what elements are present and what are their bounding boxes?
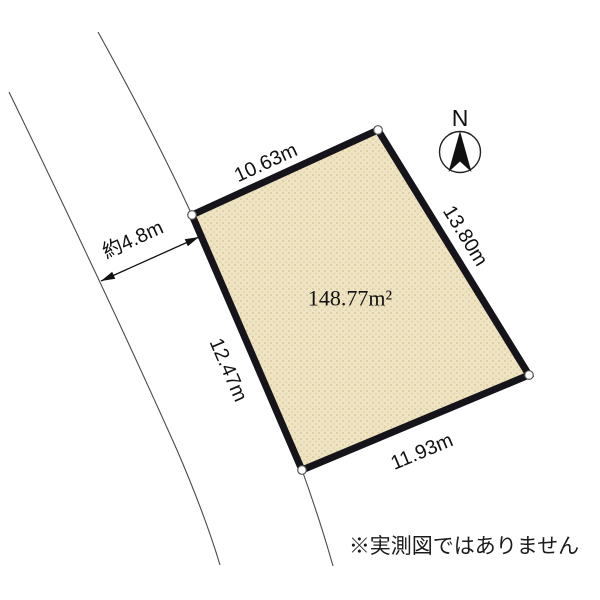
compass-n-label: N bbox=[452, 105, 469, 131]
parcel-area-label: 148.77m² bbox=[308, 286, 393, 311]
dimension-label-left: 12.47m bbox=[205, 335, 252, 405]
diagram-svg: 約4.8m 10.63m 13.80m 11.93m 12.47m 148.77… bbox=[0, 0, 600, 600]
road-left-edge-line bbox=[9, 92, 220, 565]
vertex-marker-west bbox=[188, 211, 197, 220]
road-right-edge-line-lower bbox=[302, 470, 333, 566]
disclaimer-text: ※実測図ではありません bbox=[349, 534, 579, 558]
road-right-edge-line-upper bbox=[98, 32, 192, 215]
vertex-marker-south bbox=[298, 466, 307, 475]
vertex-marker-north bbox=[374, 126, 383, 135]
compass: N bbox=[440, 105, 481, 173]
land-plot-diagram: 約4.8m 10.63m 13.80m 11.93m 12.47m 148.77… bbox=[0, 0, 600, 600]
dimension-label-bottom: 11.93m bbox=[388, 429, 457, 474]
vertex-marker-east bbox=[525, 371, 534, 380]
